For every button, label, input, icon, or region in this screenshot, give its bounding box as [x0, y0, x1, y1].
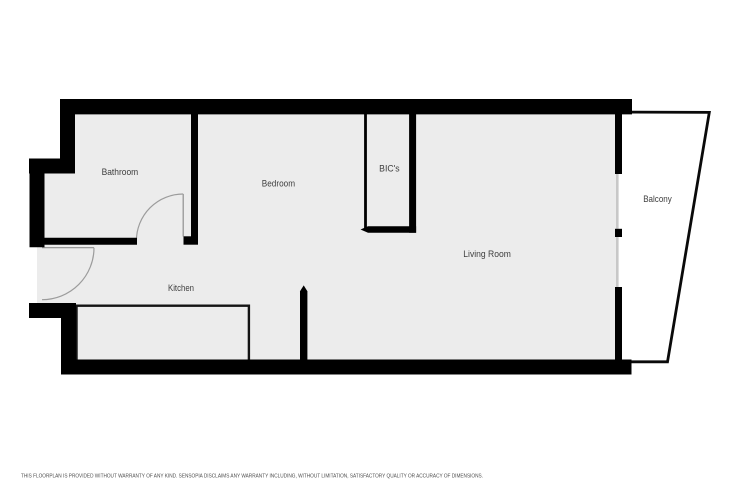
svg-text:BIC's: BIC's [379, 164, 400, 175]
svg-text:Bedroom: Bedroom [262, 178, 295, 189]
svg-text:Bathroom: Bathroom [102, 167, 139, 178]
svg-text:Kitchen: Kitchen [168, 283, 194, 294]
svg-text:Living Room: Living Room [463, 249, 511, 260]
svg-text:Balcony: Balcony [643, 194, 672, 205]
svg-text:THIS FLOORPLAN IS PROVIDED WIT: THIS FLOORPLAN IS PROVIDED WITHOUT WARRA… [21, 474, 483, 480]
